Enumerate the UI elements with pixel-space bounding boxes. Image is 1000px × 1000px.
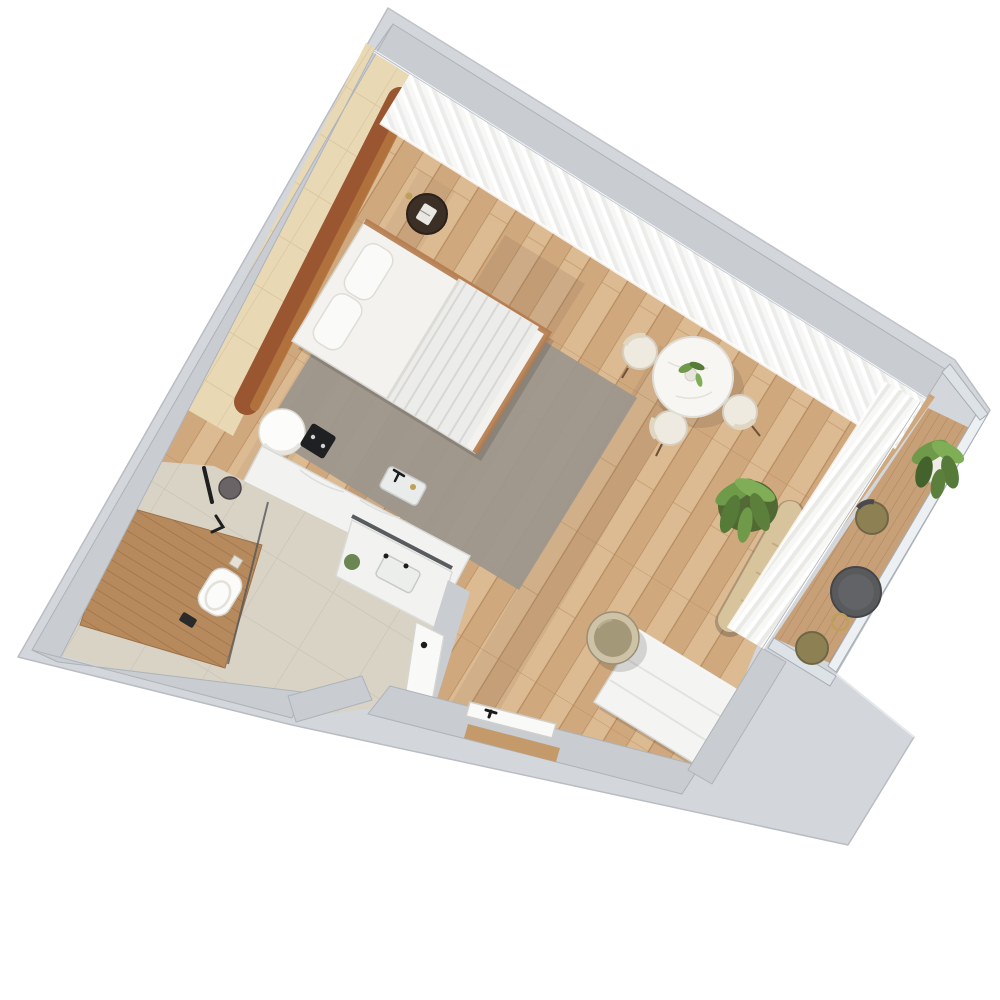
brass-wall-lamp — [406, 193, 413, 200]
bathroom-door-handle — [421, 642, 427, 648]
balcony-table — [831, 567, 881, 617]
side-table — [407, 194, 447, 234]
rain-shower-head — [219, 477, 241, 499]
floorplan-stage: 3D floor plan render — studio apartment,… — [0, 0, 1000, 1000]
floorplan-render: 3D floor plan render — studio apartment,… — [0, 0, 1000, 1000]
vanity-plant — [344, 554, 360, 570]
balcony-chair — [856, 502, 888, 534]
